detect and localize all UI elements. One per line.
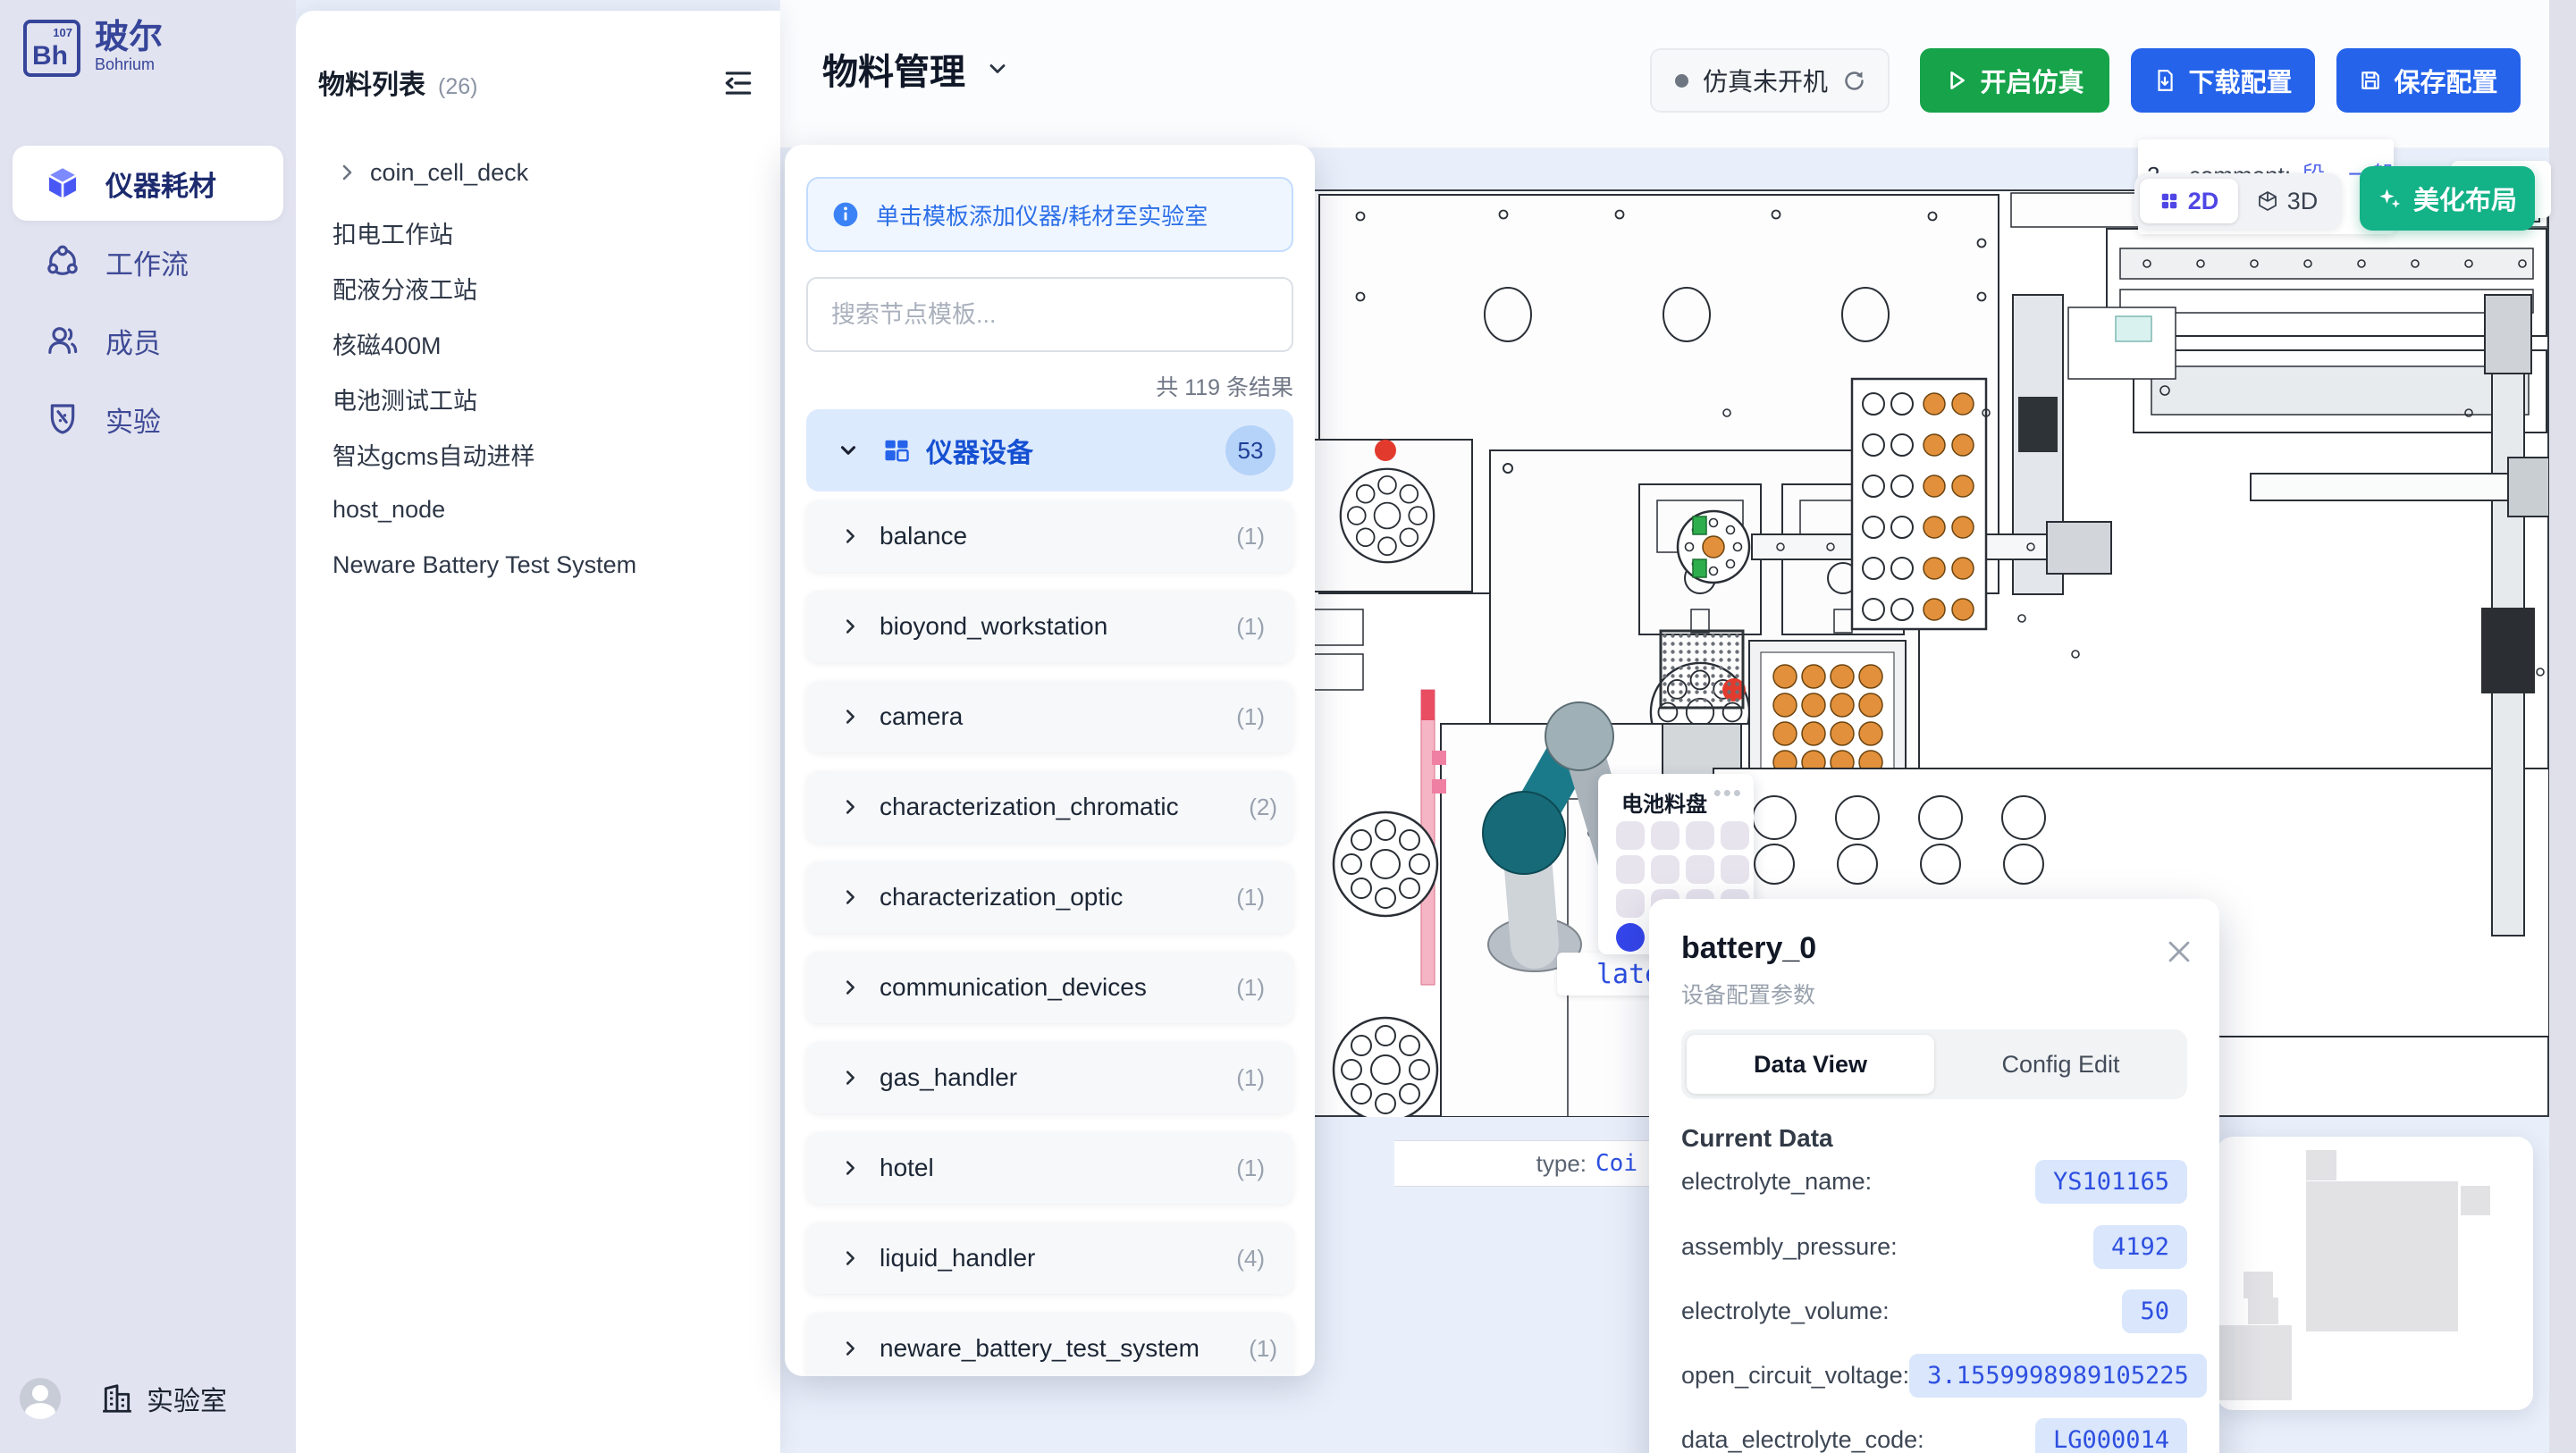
chevron-right-icon — [840, 1068, 860, 1088]
chevron-down-icon — [985, 56, 1010, 81]
material-list-panel: 物料列表(26) coin_cell_deck 扣电工作站 配液分液工站 核磁4… — [296, 11, 780, 1453]
beautify-layout-button[interactable]: 美化布局 — [2360, 166, 2535, 231]
chevron-right-icon — [840, 526, 860, 546]
template-search-input[interactable] — [806, 277, 1293, 352]
template-item-balance[interactable]: balance (1) — [806, 500, 1293, 572]
minimap-block — [2243, 1272, 2273, 1298]
start-simulation-label: 开启仿真 — [1980, 62, 2084, 99]
type-tooltip-value: Coi — [1595, 1150, 1637, 1177]
page-title-label: 物料管理 — [822, 43, 965, 95]
popup-title: battery_0 — [1681, 931, 1816, 966]
save-icon — [2359, 69, 2382, 92]
material-list-title: 物料列表(26) — [318, 63, 477, 102]
save-config-label: 保存配置 — [2394, 62, 2497, 99]
data-row-electrolyte-name: electrolyte_name: YS101165 — [1681, 1156, 2187, 1206]
workspace-label[interactable]: 实验室 — [147, 1379, 227, 1418]
devices-grid-icon — [883, 437, 910, 464]
app-root: 物料管理 仿真未开机 开启仿真 下载配置 保存配置 — [0, 0, 2576, 1453]
cad-orange-tray — [1749, 641, 1906, 788]
test-tube-icon — [45, 401, 80, 437]
minimap-block — [2248, 1298, 2278, 1324]
value-pill: 3.1559998989105225 — [1909, 1354, 2207, 1398]
material-item[interactable]: 智达gcms自动进样 — [333, 426, 535, 482]
chevron-right-icon — [840, 1248, 860, 1268]
minimap-block — [2217, 1325, 2292, 1400]
simulation-status-pill[interactable]: 仿真未开机 — [1650, 48, 1890, 113]
template-item-camera[interactable]: camera (1) — [806, 681, 1293, 752]
category-instrument-devices[interactable]: 仪器设备 53 — [806, 409, 1293, 491]
data-row-data-electrolyte-code: data_electrolyte_code: LG000014 — [1681, 1415, 2187, 1453]
sidebar-item-experiments[interactable]: 实验 — [13, 382, 283, 457]
template-hint-text: 单击模板添加仪器/耗材至实验室 — [876, 198, 1208, 231]
tray-slot[interactable] — [1651, 821, 1679, 850]
status-dot-icon — [1675, 74, 1688, 88]
tray-slot[interactable] — [1616, 821, 1645, 850]
chevron-right-icon — [840, 1158, 860, 1178]
collapse-list-icon[interactable] — [721, 66, 755, 100]
template-item-hotel[interactable]: hotel (1) — [806, 1132, 1293, 1204]
category-label: 仪器设备 — [926, 431, 1033, 470]
data-row-assembly-pressure: assembly_pressure: 4192 — [1681, 1222, 2187, 1272]
status-label: 仿真未开机 — [1703, 63, 1828, 98]
minimap-block — [2306, 1150, 2336, 1180]
material-item-coin-cell-deck[interactable]: coin_cell_deck — [336, 145, 528, 200]
material-item[interactable]: 电池测试工站 — [333, 371, 477, 426]
current-data-heading: Current Data — [1681, 1124, 1833, 1153]
template-item-communication-devices[interactable]: communication_devices (1) — [806, 952, 1293, 1023]
type-tooltip-label: type: — [1536, 1150, 1587, 1178]
node-template-panel: 单击模板添加仪器/耗材至实验室 共 119 条结果 仪器设备 53 balanc… — [785, 145, 1315, 1376]
chevron-right-icon — [840, 707, 860, 726]
lab-building-icon — [100, 1382, 134, 1415]
start-simulation-button[interactable]: 开启仿真 — [1920, 48, 2109, 113]
close-icon[interactable] — [2164, 936, 2194, 967]
sidebar-item-instruments[interactable]: 仪器耗材 — [13, 146, 283, 221]
value-pill: 50 — [2122, 1289, 2187, 1333]
chevron-right-icon[interactable] — [336, 162, 358, 183]
brand-logo[interactable]: 107 Bh 玻尔 Bohrium — [23, 20, 163, 77]
sidebar: 107 Bh 玻尔 Bohrium 仪器耗材 工作流 — [0, 0, 296, 1453]
brand-name-cn: 玻尔 — [95, 20, 163, 55]
tray-slot[interactable] — [1616, 855, 1645, 884]
material-item[interactable]: 核磁400M — [333, 315, 442, 371]
cube-icon — [45, 165, 80, 201]
minimap-block — [2461, 1186, 2490, 1215]
tab-config-edit[interactable]: Config Edit — [1940, 1035, 2182, 1094]
popup-subtitle: 设备配置参数 — [1681, 978, 1815, 1010]
tray-slot[interactable] — [1651, 855, 1679, 884]
members-icon — [45, 323, 80, 358]
tray-slot[interactable] — [1686, 821, 1714, 850]
material-list-count: (26) — [438, 74, 477, 99]
device-config-popup: battery_0 设备配置参数 Data View Config Edit C… — [1649, 899, 2219, 1453]
view-2d-segment[interactable]: 2D — [2140, 179, 2238, 223]
template-item-characterization-optic[interactable]: characterization_optic (1) — [806, 861, 1293, 933]
template-result-count: 共 119 条结果 — [806, 370, 1293, 402]
material-item[interactable]: host_node — [333, 482, 445, 537]
play-icon — [1945, 69, 1968, 92]
chevron-right-icon — [840, 978, 860, 997]
page-title[interactable]: 物料管理 — [822, 43, 1010, 95]
view-3d-label: 3D — [2287, 188, 2319, 215]
sidebar-item-workflow[interactable]: 工作流 — [13, 224, 283, 299]
grid-2d-icon — [2159, 191, 2179, 211]
data-row-open-circuit-voltage: open_circuit_voltage: 3.1559998989105225 — [1681, 1350, 2187, 1400]
minimap[interactable] — [2217, 1137, 2533, 1410]
sparkles-icon — [2378, 186, 2403, 211]
view-2d-label: 2D — [2188, 188, 2219, 215]
tray-slot[interactable] — [1721, 855, 1749, 884]
template-item-neware-battery-test-system[interactable]: neware_battery_test_system (1) — [806, 1313, 1293, 1376]
template-item-gas-handler[interactable]: gas_handler (1) — [806, 1042, 1293, 1113]
chevron-right-icon — [840, 797, 860, 817]
tray-slot[interactable] — [1616, 889, 1645, 918]
material-item[interactable]: 扣电工作站 — [333, 205, 453, 260]
tray-slot[interactable] — [1721, 821, 1749, 850]
material-item[interactable]: 配液分液工站 — [333, 260, 477, 315]
save-config-button[interactable]: 保存配置 — [2336, 48, 2521, 113]
cube-3d-icon — [2257, 190, 2278, 212]
download-config-label: 下载配置 — [2188, 62, 2292, 99]
category-count-badge: 53 — [1225, 425, 1275, 475]
value-pill: 4192 — [2093, 1225, 2187, 1269]
info-icon — [831, 200, 860, 229]
chevron-right-icon — [840, 887, 860, 907]
chevron-right-icon — [840, 617, 860, 636]
template-item-characterization-chromatic[interactable]: characterization_chromatic (2) — [806, 771, 1293, 843]
logo-bh-icon: 107 Bh — [23, 20, 80, 77]
sidebar-item-members[interactable]: 成员 — [13, 303, 283, 378]
material-item[interactable]: Neware Battery Test System — [333, 537, 636, 592]
right-edge-strip — [2549, 0, 2576, 1453]
data-row-electrolyte-volume: electrolyte_volume: 50 — [1681, 1286, 2187, 1336]
battery-tray-title: 电池料盘 — [1621, 786, 1707, 818]
workflow-icon — [45, 244, 80, 280]
beautify-layout-label: 美化布局 — [2413, 180, 2517, 217]
more-icon[interactable]: ••• — [1713, 779, 1743, 807]
avatar[interactable] — [20, 1378, 61, 1419]
popup-tabs: Data View Config Edit — [1681, 1029, 2187, 1099]
view-mode-toggle: 2D 3D — [2134, 173, 2342, 229]
chevron-right-icon — [840, 1339, 860, 1358]
value-pill: YS101165 — [2035, 1160, 2187, 1204]
tab-data-view[interactable]: Data View — [1687, 1035, 1934, 1094]
brand-name-en: Bohrium — [95, 55, 163, 74]
type-tooltip: type: Coi — [1394, 1140, 1650, 1187]
sidebar-footer: 实验室 — [0, 1378, 296, 1419]
download-file-icon — [2153, 69, 2176, 92]
view-3d-segment[interactable]: 3D — [2238, 179, 2336, 223]
minimap-block — [2306, 1181, 2458, 1331]
template-item-liquid-handler[interactable]: liquid_handler (4) — [806, 1222, 1293, 1294]
template-hint-banner: 单击模板添加仪器/耗材至实验室 — [806, 177, 1293, 252]
download-config-button[interactable]: 下载配置 — [2131, 48, 2315, 113]
value-pill: LG000014 — [2035, 1418, 2187, 1453]
tray-slot[interactable] — [1686, 855, 1714, 884]
chevron-down-icon — [837, 439, 860, 462]
cad-vial-rack — [1852, 379, 1986, 629]
template-item-bioyond-workstation[interactable]: bioyond_workstation (1) — [806, 591, 1293, 662]
tray-slot-selected[interactable] — [1616, 923, 1645, 952]
refresh-icon[interactable] — [1842, 69, 1866, 93]
